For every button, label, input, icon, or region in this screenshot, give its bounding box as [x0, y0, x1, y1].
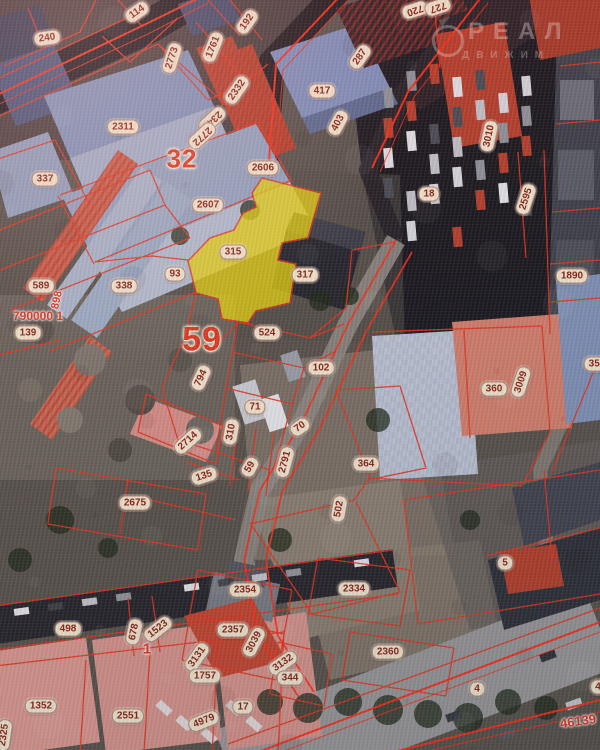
parcel-label-2607[interactable]: 2607: [192, 198, 224, 213]
parcel-label-355[interactable]: 355: [584, 357, 600, 372]
parcel-label-192[interactable]: 192: [233, 7, 261, 37]
parcel-label-135[interactable]: 135: [189, 465, 219, 488]
parcel-label-2606[interactable]: 2606: [247, 161, 279, 176]
parcel-label-102[interactable]: 102: [308, 361, 335, 376]
parcel-label-93[interactable]: 93: [164, 267, 185, 282]
parcel-label-59[interactable]: 59: [238, 454, 262, 480]
parcel-label-287[interactable]: 287: [346, 42, 374, 72]
parcel-label-1761[interactable]: 1761: [200, 29, 226, 65]
parcel-label-5[interactable]: 5: [497, 556, 513, 571]
parcel-label-71[interactable]: 71: [244, 400, 265, 415]
parcel-label-678[interactable]: 678: [124, 617, 144, 646]
parcel-label-4[interactable]: 4: [590, 680, 600, 695]
parcel-label-2354[interactable]: 2354: [229, 583, 261, 598]
parcel-label-1757[interactable]: 1757: [189, 669, 221, 684]
parcel-label-2773[interactable]: 2773: [160, 40, 184, 75]
parcel-label-2360[interactable]: 2360: [372, 645, 404, 660]
parcel-label-310[interactable]: 310: [221, 418, 240, 447]
parcel-label-4979[interactable]: 4979: [186, 708, 222, 734]
parcel-label-70[interactable]: 70: [287, 415, 313, 439]
parcel-label-2332[interactable]: 2332: [222, 72, 253, 107]
parcel-label-2595[interactable]: 2595: [514, 181, 538, 216]
parcel-label-2311[interactable]: 2311: [107, 120, 139, 135]
parcel-label-589[interactable]: 589: [28, 279, 55, 294]
parcel-label-364[interactable]: 364: [353, 457, 380, 472]
parcel-label-403[interactable]: 403: [325, 108, 351, 139]
parcel-label-2675[interactable]: 2675: [119, 496, 151, 511]
parcel-label-114[interactable]: 114: [122, 0, 152, 26]
parcel-label-524[interactable]: 524: [254, 326, 281, 341]
parcel-label-46139[interactable]: 46139: [559, 711, 597, 731]
parcel-label-338[interactable]: 338: [111, 279, 138, 294]
parcel-label-17[interactable]: 17: [232, 700, 253, 715]
parcel-label-317[interactable]: 317: [292, 268, 319, 283]
parcel-label-360[interactable]: 360: [481, 382, 508, 397]
parcel-label-240[interactable]: 240: [33, 29, 62, 48]
parcel-label-1523[interactable]: 1523: [141, 613, 176, 645]
parcel-label-502[interactable]: 502: [329, 495, 348, 524]
parcel-label-139[interactable]: 139: [15, 326, 42, 341]
parcel-label-32[interactable]: 32: [167, 144, 198, 175]
parcel-label-417[interactable]: 417: [309, 84, 336, 99]
parcel-label-1352[interactable]: 1352: [25, 699, 57, 714]
parcel-label-794[interactable]: 794: [189, 363, 214, 394]
parcel-label-3010[interactable]: 3010: [478, 119, 499, 154]
parcel-labels-layer: 2401141921761277323322340277223112874174…: [0, 0, 600, 750]
parcel-label-790000-1[interactable]: 790000 1: [13, 309, 63, 323]
parcel-label-2714[interactable]: 2714: [171, 425, 205, 458]
cadastral-map[interactable]: 2401141921761277323322340277223112874174…: [0, 0, 600, 750]
parcel-label-2334[interactable]: 2334: [338, 582, 370, 597]
parcel-label-1[interactable]: 1: [143, 641, 151, 658]
parcel-label-727[interactable]: 727: [423, 0, 453, 18]
parcel-label-898[interactable]: 898: [49, 290, 65, 310]
parcel-label-498[interactable]: 498: [55, 622, 82, 637]
parcel-label-315[interactable]: 315: [220, 245, 247, 260]
parcel-label-59[interactable]: 59: [182, 321, 222, 360]
parcel-label-2325[interactable]: 2325: [0, 718, 14, 750]
parcel-label-344[interactable]: 344: [277, 671, 304, 686]
parcel-label-2551[interactable]: 2551: [112, 709, 144, 724]
parcel-label-2357[interactable]: 2357: [217, 623, 249, 638]
parcel-label-4[interactable]: 4: [469, 682, 485, 697]
parcel-label-337[interactable]: 337: [32, 172, 59, 187]
parcel-label-2791[interactable]: 2791: [274, 444, 297, 479]
parcel-label-18[interactable]: 18: [418, 187, 439, 202]
parcel-label-3009[interactable]: 3009: [509, 364, 533, 399]
parcel-label-1890[interactable]: 1890: [556, 269, 588, 284]
